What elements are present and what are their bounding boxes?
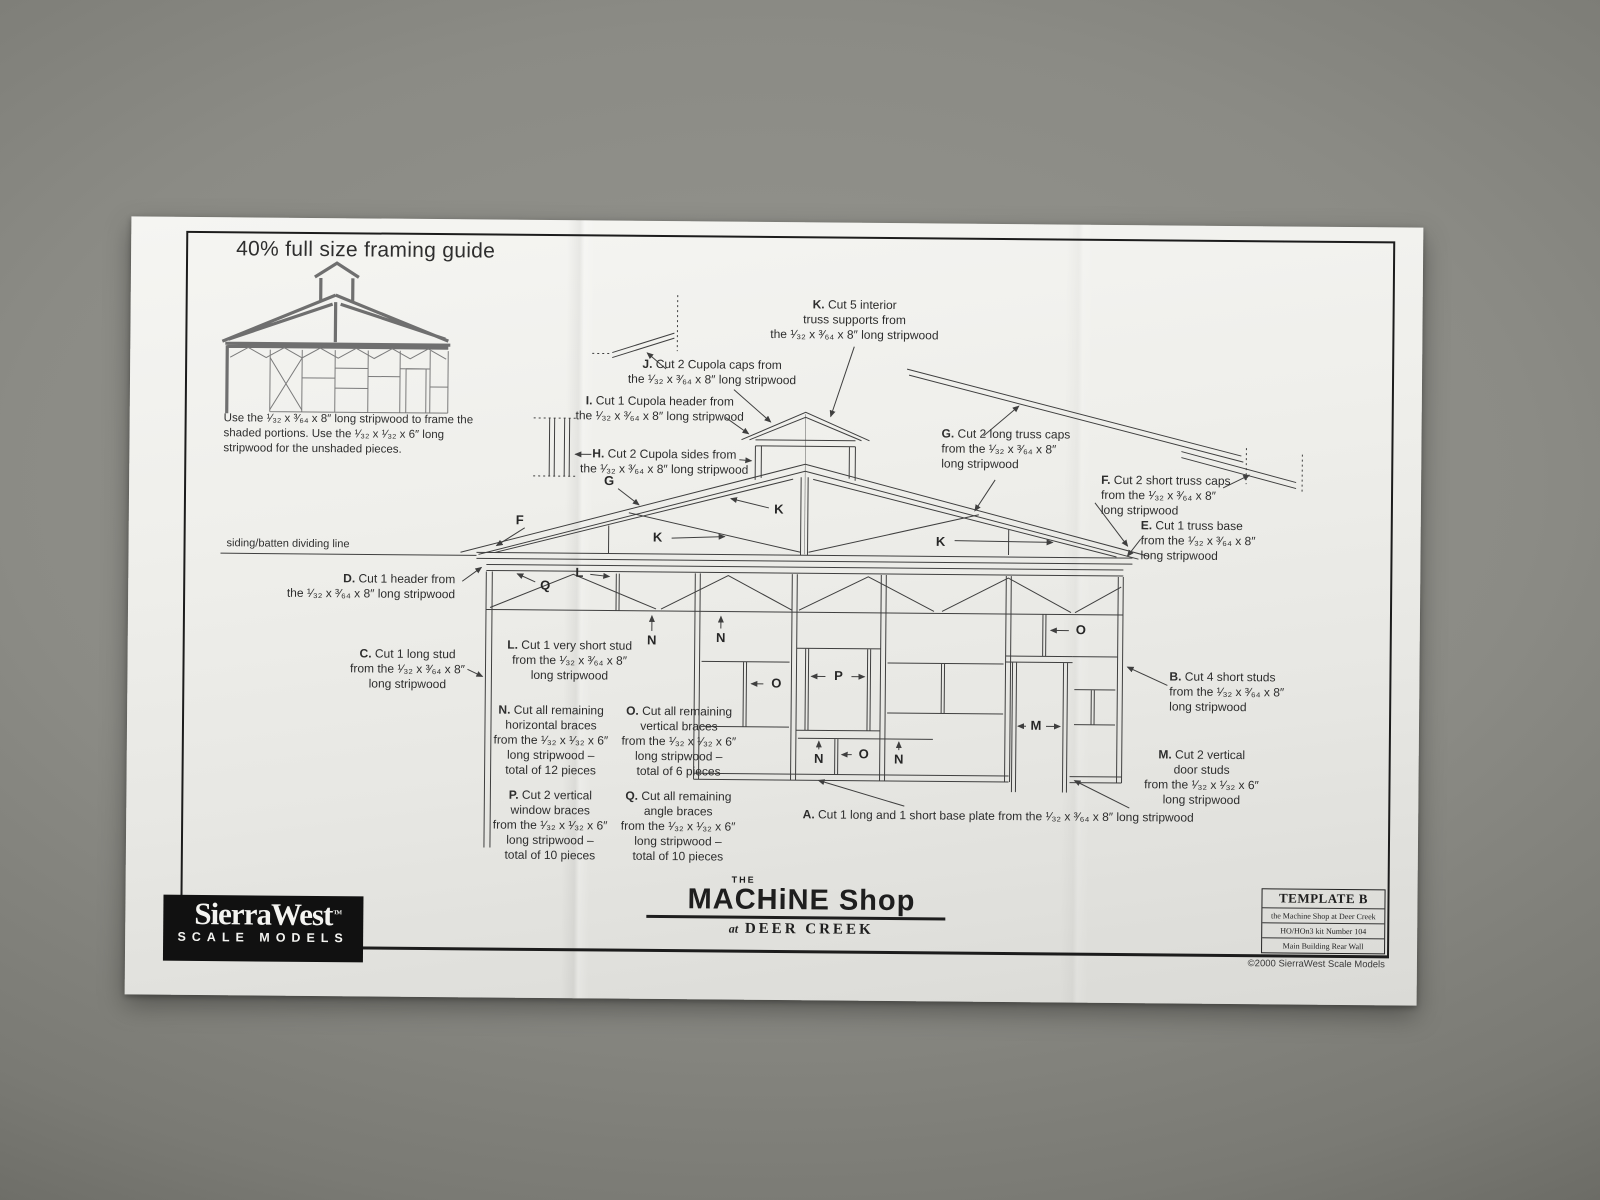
template-table-title: TEMPLATE B (1262, 889, 1384, 908)
callout-E: E. Cut 1 truss basefrom the ¹⁄₃₂ x ³⁄₆₄ … (1140, 518, 1255, 564)
sierrawest-logo-subtitle: SCALE MODELS (163, 930, 363, 946)
callout-O: O. Cut all remainingvertical bracesfrom … (621, 704, 736, 780)
trademark-symbol: TM (333, 898, 341, 928)
callout-D: D. Cut 1 header fromthe ¹⁄₃₂ x ³⁄₆₄ x 8″… (287, 571, 456, 602)
machine-shop-logo: THE MACHiNE Shop at DEER CREEK (670, 874, 933, 939)
callout-F: F. Cut 2 short truss capsfrom the ¹⁄₃₂ x… (1101, 473, 1231, 519)
marker-N: N (814, 751, 824, 766)
marker-M: M (1031, 718, 1042, 733)
callout-P: P. Cut 2 verticalwindow bracesfrom the ¹… (492, 788, 607, 864)
marker-N: N (647, 632, 657, 647)
guide-instructions: Use the ¹⁄₃₂ x ³⁄₆₄ x 8″ long stripwood … (223, 411, 481, 459)
marker-L: L (575, 565, 583, 580)
marker-G: G (604, 473, 614, 488)
marker-K: K (936, 534, 946, 549)
template-info-table: TEMPLATE B the Machine Shop at Deer Cree… (1261, 888, 1386, 954)
template-table-rows: the Machine Shop at Deer CreekHO/HOn3 ki… (1262, 907, 1384, 953)
callout-C: C. Cut 1 long studfrom the ¹⁄₃₂ x ³⁄₆₄ x… (350, 646, 465, 692)
callout-Q: Q. Cut all remainingangle bracesfrom the… (620, 789, 735, 865)
callout-K: K. Cut 5 interiortruss supports fromthe … (770, 297, 939, 343)
marker-K: K (653, 529, 663, 544)
template-table-row: Main Building Rear Wall (1262, 937, 1384, 953)
marker-P: P (834, 668, 843, 683)
sierrawest-logo: SierraWestTM SCALE MODELS (163, 895, 364, 963)
callout-N: N. Cut all remaininghorizontal bracesfro… (493, 703, 608, 779)
marker-F: F (516, 512, 524, 527)
machine-shop-logo-name: MACHiNE Shop (670, 884, 932, 916)
callout-G: G. Cut 2 long truss capsfrom the ¹⁄₃₂ x … (941, 426, 1070, 472)
template-sheet: 40% full size framing guide Use the ¹⁄₃₂… (125, 216, 1424, 1005)
marker-O: O (1076, 622, 1086, 637)
sierrawest-logo-name: SierraWestTM (163, 899, 363, 931)
guide-title: 40% full size framing guide (236, 237, 495, 263)
marker-O: O (771, 675, 781, 690)
marker-Q: Q (540, 577, 550, 592)
dividing-line-label: siding/batten dividing line (227, 537, 350, 550)
mini-diagram-thin-lines (230, 347, 449, 413)
marker-K: K (774, 501, 784, 516)
callout-B: B. Cut 4 short studsfrom the ¹⁄₃₂ x ³⁄₆₄… (1169, 669, 1284, 715)
template-table-row: the Machine Shop at Deer Creek (1262, 907, 1384, 923)
mini-diagram-shaded-lines (222, 262, 451, 415)
copyright-text: ©2000 SierraWest Scale Models (1173, 957, 1385, 970)
callout-J: J. Cut 2 Cupola caps fromthe ¹⁄₃₂ x ³⁄₆₄… (628, 357, 797, 388)
marker-N: N (716, 630, 726, 645)
marker-O: O (859, 746, 869, 761)
callout-I: I. Cut 1 Cupola header fromthe ¹⁄₃₂ x ³⁄… (575, 393, 744, 424)
callout-M: M. Cut 2 verticaldoor studsfrom the ¹⁄₃₂… (1144, 747, 1259, 808)
template-table-row: HO/HOn3 kit Number 104 (1262, 922, 1384, 938)
callout-L: L. Cut 1 very short studfrom the ¹⁄₃₂ x … (507, 638, 632, 684)
machine-shop-logo-at: at (729, 921, 738, 935)
machine-shop-logo-place: at DEER CREEK (670, 920, 932, 939)
marker-N: N (894, 752, 904, 767)
